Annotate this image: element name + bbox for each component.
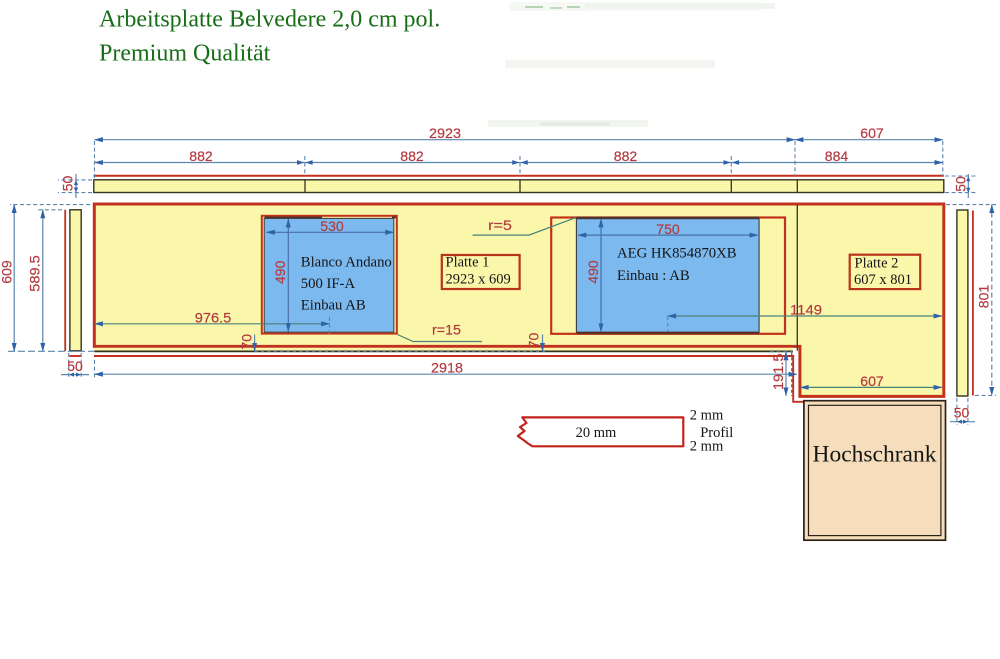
svg-text:191.5: 191.5 — [771, 353, 787, 390]
svg-text:Blanco Andano: Blanco Andano — [301, 254, 392, 270]
svg-text:r=5: r=5 — [488, 218, 512, 234]
svg-text:Platte 1: Platte 1 — [446, 255, 490, 271]
svg-text:50: 50 — [954, 176, 970, 192]
svg-text:490: 490 — [586, 260, 602, 284]
svg-text:2923 x 609: 2923 x 609 — [446, 272, 511, 288]
svg-text:976.5: 976.5 — [195, 310, 232, 326]
svg-text:1149: 1149 — [790, 303, 822, 319]
svg-text:70: 70 — [527, 333, 543, 349]
svg-text:Platte 2: Platte 2 — [855, 256, 899, 272]
svg-text:Arbeitsplatte Belvedere 2,0 cm: Arbeitsplatte Belvedere 2,0 cm pol. — [99, 7, 440, 33]
svg-text:607: 607 — [860, 374, 884, 390]
svg-text:Premium Qualität: Premium Qualität — [99, 41, 271, 67]
svg-text:Einbau AB: Einbau AB — [301, 298, 366, 314]
svg-text:882: 882 — [189, 149, 213, 165]
svg-text:500 IF-A: 500 IF-A — [301, 276, 356, 292]
svg-text:70: 70 — [240, 334, 256, 350]
svg-text:20 mm: 20 mm — [576, 425, 617, 441]
svg-text:50: 50 — [67, 359, 83, 375]
svg-text:884: 884 — [825, 149, 849, 165]
svg-text:609: 609 — [0, 260, 16, 284]
svg-text:r=15: r=15 — [432, 323, 461, 339]
svg-text:607 x 801: 607 x 801 — [854, 272, 912, 288]
svg-text:2 mm: 2 mm — [690, 439, 724, 455]
svg-text:607: 607 — [860, 126, 884, 142]
svg-text:882: 882 — [614, 149, 638, 165]
svg-text:2 mm: 2 mm — [690, 408, 724, 424]
svg-text:882: 882 — [400, 149, 424, 165]
svg-text:50: 50 — [61, 176, 77, 192]
svg-text:Einbau : AB: Einbau : AB — [617, 268, 690, 284]
svg-text:750: 750 — [656, 222, 680, 238]
svg-text:Hochschrank: Hochschrank — [813, 442, 937, 468]
svg-text:2923: 2923 — [429, 126, 461, 142]
svg-text:801: 801 — [977, 285, 993, 309]
svg-text:2918: 2918 — [431, 361, 463, 377]
svg-text:AEG HK854870XB: AEG HK854870XB — [617, 246, 737, 262]
svg-text:530: 530 — [320, 219, 344, 235]
svg-text:589.5: 589.5 — [28, 255, 44, 292]
svg-text:50: 50 — [954, 406, 970, 422]
svg-text:490: 490 — [273, 260, 289, 284]
